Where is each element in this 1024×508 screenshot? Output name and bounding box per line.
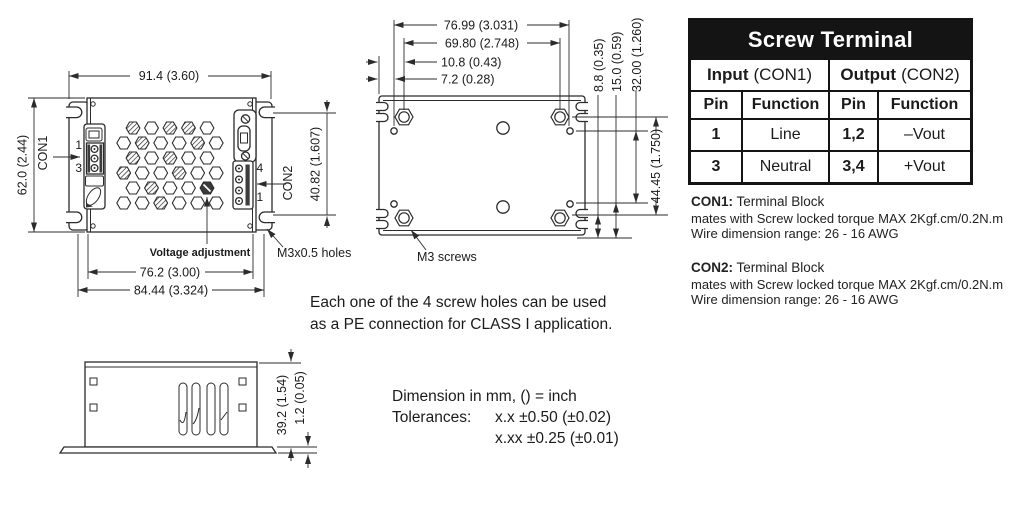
cell-in-pin: 3 (691, 152, 741, 182)
tolerance1-value: x.x ±0.50 (±0.02) (495, 409, 611, 426)
con2-pin4-label: 4 (257, 161, 264, 175)
dim-6980: 69.80 (2.748) (445, 37, 519, 51)
dim-150: 15.0 (0.59) (610, 32, 624, 92)
con1-note: CON1: Terminal Block mates with Screw lo… (691, 194, 1016, 242)
units-line: Dimension in mm, () = inch (392, 386, 619, 407)
con2-note: CON2: Terminal Block mates with Screw lo… (691, 260, 1016, 308)
side-view-drawing: 39.2 (1.54) 1.2 (0.05) (60, 349, 317, 468)
dim-4445: 44.45 (1.750) (649, 129, 663, 203)
con1-note-type: Terminal Block (737, 194, 825, 209)
con2-note-type: Terminal Block (737, 260, 825, 275)
datasheet-mechanical-page: .ol{fill:#fff;stroke:#2b2b2b;stroke-widt… (0, 0, 1024, 508)
tolerance-line1: Tolerances:x.x ±0.50 (±0.02) (392, 407, 619, 428)
input-group-label: Input (707, 65, 749, 85)
con1-note-wire: Wire dimension range: 26 - 16 AWG (691, 226, 1016, 242)
input-group-suffix: (CON1) (753, 65, 812, 85)
table-row: 3 Neutral 3,4 +Vout (691, 150, 970, 182)
pin-header: Pin (828, 92, 877, 118)
con1-pin3-label: 3 (75, 161, 82, 175)
con1-note-torque: mates with Screw locked torque MAX 2Kgf.… (691, 211, 1016, 227)
m3-screws-label: M3 screws (417, 250, 477, 264)
mounting-slot (66, 212, 82, 223)
pe-note-line1: Each one of the 4 screw holes can be use… (310, 292, 612, 314)
dim-con-height: 40.82 (1.607) (309, 127, 323, 201)
dim-outer-width: 84.44 (3.324) (134, 284, 208, 298)
mounting-slot (259, 212, 275, 223)
output-group-header: Output (CON2) (828, 60, 970, 90)
ac-inlet-component (234, 110, 256, 162)
dim-width-91: 91.4 (3.60) (139, 69, 199, 83)
base-flange (60, 447, 276, 453)
pe-note: Each one of the 4 screw holes can be use… (310, 292, 612, 336)
dim-72: 7.2 (0.28) (441, 73, 495, 87)
side-panel (85, 362, 257, 447)
con2-pin1-label: 1 (257, 190, 264, 204)
con2-terminal-block (233, 161, 253, 209)
cell-in-pin: 1 (691, 120, 741, 150)
table-column-headers: Pin Function Pin Function (691, 90, 970, 118)
con1-note-label: CON1: (691, 194, 733, 209)
con2-note-torque: mates with Screw locked torque MAX 2Kgf.… (691, 277, 1016, 293)
tolerance2-value: x.xx ±0.25 (±0.01) (392, 428, 619, 449)
function-header: Function (877, 92, 970, 118)
con2-callout-label: CON2 (281, 166, 295, 201)
con1-callout-label: CON1 (36, 136, 50, 171)
mounting-slot (259, 107, 275, 118)
dim-88: 8.8 (0.35) (592, 38, 606, 92)
dim-7699: 76.99 (3.031) (444, 19, 518, 33)
pe-note-line2: as a PE connection for CLASS I applicati… (310, 314, 612, 336)
cell-in-func: Neutral (741, 152, 828, 182)
table-row: 1 Line 1,2 –Vout (691, 118, 970, 150)
pin-header: Pin (691, 92, 741, 118)
output-group-label: Output (840, 65, 896, 85)
cell-out-pin: 3,4 (828, 152, 877, 182)
dim-108: 10.8 (0.43) (441, 56, 501, 70)
cell-out-func: –Vout (877, 120, 970, 150)
con2-note-label: CON2: (691, 260, 733, 275)
dim-3200: 32.00 (1.260) (630, 18, 644, 92)
m3-holes-label: M3x0.5 holes (277, 246, 351, 260)
dimension-units-note: Dimension in mm, () = inch Tolerances:x.… (392, 386, 619, 449)
voltage-adjustment-label: Voltage adjustment (150, 247, 251, 259)
dim-inner-width: 76.2 (3.00) (140, 266, 200, 280)
con1-pin1-label: 1 (75, 138, 82, 152)
con1-terminal-block (84, 124, 105, 209)
table-title: Screw Terminal (691, 21, 970, 58)
con2-note-wire: Wire dimension range: 26 - 16 AWG (691, 292, 1016, 308)
bottom-view-drawing: M3 screws 76.99 (3.031) 69.80 (2.748) 10… (366, 18, 668, 264)
chassis-body (87, 98, 256, 232)
cell-out-func: +Vout (877, 152, 970, 182)
dim-side-height: 39.2 (1.54) (275, 375, 289, 435)
tolerances-label: Tolerances: (392, 407, 495, 428)
cell-out-pin: 1,2 (828, 120, 877, 150)
input-group-header: Input (CON1) (691, 60, 828, 90)
cell-in-func: Line (741, 120, 828, 150)
mounting-slot (66, 107, 82, 118)
output-group-suffix: (CON2) (901, 65, 960, 85)
table-group-row: Input (CON1) Output (CON2) (691, 58, 970, 90)
dim-base-thickness: 1.2 (0.05) (293, 371, 307, 425)
screw-terminal-table: Screw Terminal Input (CON1) Output (CON2… (688, 18, 973, 185)
top-view-drawing: 1 3 4 1 CON1 CON2 Voltage adjustment M3x… (16, 69, 352, 298)
dim-height-62: 62.0 (2.44) (16, 135, 30, 195)
function-header: Function (741, 92, 828, 118)
